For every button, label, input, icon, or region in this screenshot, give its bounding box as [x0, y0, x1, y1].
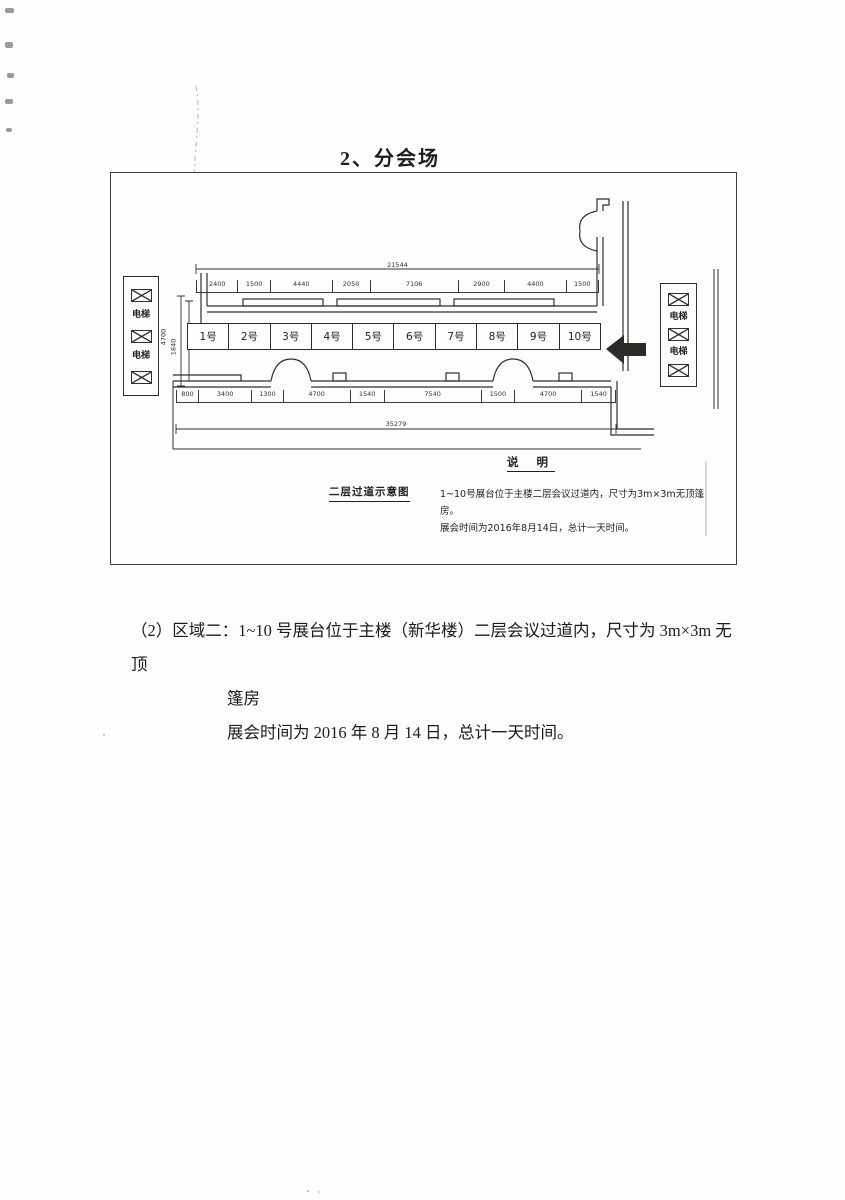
dim-segment: 1300	[251, 390, 282, 402]
scan-mark	[7, 73, 14, 78]
elevator-box-icon	[668, 293, 689, 306]
page-title: 2、分会场	[300, 142, 480, 171]
booth-cell: 10号	[559, 324, 600, 349]
booth-cell: 5号	[352, 324, 393, 349]
legend-title: 说 明	[507, 454, 555, 472]
legend-line-1: 1~10号展台位于主楼二层会议过道内，尺寸为3m×3m无顶篷房。	[440, 486, 716, 520]
booth-cell: 9号	[517, 324, 558, 349]
dim-row-top: 24001500444020507106290044001500	[196, 280, 599, 293]
elevator-label: 电梯	[132, 352, 150, 361]
dim-segment: 1500	[237, 280, 269, 292]
body-line-2: 篷房	[131, 682, 741, 716]
elevator-box-icon	[131, 330, 152, 343]
body-paragraph: （2）区域二：1~10 号展台位于主楼（新华楼）二层会议过道内，尺寸为 3m×3…	[131, 614, 741, 750]
dim-segment: 7540	[384, 390, 481, 402]
dim-segment: 4400	[504, 280, 565, 292]
diagram-frame: 21544 24001500444020507106290044001500 8…	[110, 172, 737, 565]
booth-cell: 7号	[435, 324, 476, 349]
elevator-label: 电梯	[669, 313, 687, 322]
elevator-shaft-right: 电梯 电梯	[660, 283, 697, 387]
dim-top-total: 21544	[196, 261, 599, 269]
booth-cell: 4号	[311, 324, 352, 349]
scan-mark	[6, 128, 12, 132]
dim-segment: 800	[176, 390, 198, 402]
dim-segment: 4700	[283, 390, 350, 402]
dim-segment: 1500	[481, 390, 514, 402]
elevator-label: 电梯	[669, 348, 687, 357]
dim-segment: 1540	[581, 390, 615, 402]
dim-segment: 4700	[514, 390, 581, 402]
elevator-box-icon	[668, 364, 689, 377]
booth-cell: 2号	[228, 324, 269, 349]
booth-cell: 3号	[270, 324, 311, 349]
vdim-label-1: 4700	[159, 329, 167, 346]
elevator-shaft-left: 电梯 电梯	[123, 276, 159, 396]
caption-label: 二层过道示意图	[329, 484, 410, 502]
booth-cell: 6号	[393, 324, 434, 349]
dim-segment: 2050	[332, 280, 370, 292]
booth-row: 1号2号3号4号5号6号7号8号9号10号	[187, 323, 601, 350]
dim-row-bottom: 80034001300470015407540150047001540	[176, 390, 616, 403]
body-line-1: （2）区域二：1~10 号展台位于主楼（新华楼）二层会议过道内，尺寸为 3m×3…	[131, 614, 741, 682]
scan-dot	[318, 1191, 320, 1193]
scan-mark	[5, 99, 13, 104]
booth-cell: 8号	[476, 324, 517, 349]
legend-text: 1~10号展台位于主楼二层会议过道内，尺寸为3m×3m无顶篷房。 展会时间为20…	[440, 486, 716, 537]
body-line-3: 展会时间为 2016 年 8 月 14 日，总计一天时间。	[131, 716, 741, 750]
elevator-box-icon	[668, 328, 689, 341]
scan-mark	[5, 8, 14, 13]
dim-segment: 2900	[458, 280, 504, 292]
vdim-label-2: 1840	[169, 339, 177, 356]
elevator-box-icon	[131, 289, 152, 302]
dim-segment: 1500	[566, 280, 598, 292]
scan-dot	[103, 734, 105, 736]
dim-segment: 3400	[198, 390, 251, 402]
dim-bottom-total: 35279	[176, 420, 616, 428]
direction-arrow-icon	[606, 335, 646, 364]
dim-segment: 4440	[270, 280, 332, 292]
legend-line-2: 展会时间为2016年8月14日，总计一天时间。	[440, 520, 716, 537]
dim-segment: 2400	[196, 280, 237, 292]
dim-segment: 1540	[350, 390, 384, 402]
elevator-box-icon	[131, 371, 152, 384]
dim-segment: 7106	[370, 280, 458, 292]
scan-mark	[5, 42, 13, 48]
elevator-label: 电梯	[132, 311, 150, 320]
scan-dot	[307, 1190, 309, 1192]
booth-cell: 1号	[188, 324, 228, 349]
